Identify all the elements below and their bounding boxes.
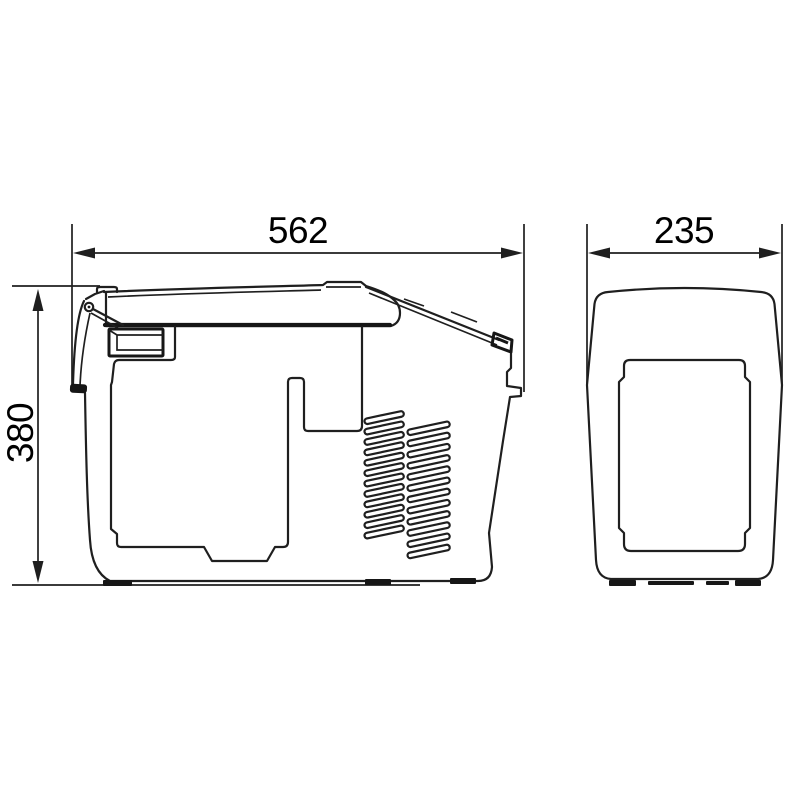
front-view <box>587 288 782 586</box>
foot <box>706 581 729 585</box>
front-recessed-panel <box>619 360 750 551</box>
hinge-band-inner-line <box>369 293 497 345</box>
hinge-band <box>366 287 512 352</box>
latch-recess-inner <box>109 330 163 350</box>
hinge-band-outer-line <box>366 287 499 340</box>
foot <box>735 580 761 586</box>
dimension-depth: 235 <box>587 210 782 384</box>
dimension-width: 562 <box>72 210 524 392</box>
latch-pivot-dot <box>88 306 91 309</box>
latch-recess-box <box>109 329 163 356</box>
arrowhead-left-icon <box>73 248 95 259</box>
arrowhead-down-icon <box>33 561 44 583</box>
recessed-panel-outline <box>111 327 362 561</box>
dimension-drawing: 562 235 380 <box>0 0 800 800</box>
dimension-height: 380 <box>0 286 420 585</box>
foot <box>609 580 636 586</box>
arrowhead-right-icon <box>501 248 523 259</box>
foot <box>648 581 694 585</box>
hinge-band-step-2 <box>451 312 477 322</box>
latch-foot-cap <box>70 384 87 394</box>
side-view <box>70 282 521 586</box>
front-view-feet <box>609 580 761 586</box>
latch-lever-inner <box>80 313 90 386</box>
foot <box>365 579 391 585</box>
latch-head <box>86 291 104 299</box>
vent-grille <box>364 411 450 559</box>
latch-lever-outer <box>73 301 84 384</box>
drawing-canvas: 562 235 380 <box>0 0 800 800</box>
hinge-end-bracket <box>492 333 512 352</box>
front-body-outline <box>587 288 782 579</box>
latch-lever <box>70 291 123 393</box>
dimension-depth-label: 235 <box>654 210 714 251</box>
arrowhead-left-icon <box>588 248 610 259</box>
arrowhead-right-icon <box>759 248 781 259</box>
arrowhead-up-icon <box>33 289 44 311</box>
lid-outline <box>104 282 400 326</box>
dimension-height-label: 380 <box>0 403 41 463</box>
foot <box>103 580 132 586</box>
foot <box>450 578 476 584</box>
dimension-width-label: 562 <box>268 210 328 251</box>
